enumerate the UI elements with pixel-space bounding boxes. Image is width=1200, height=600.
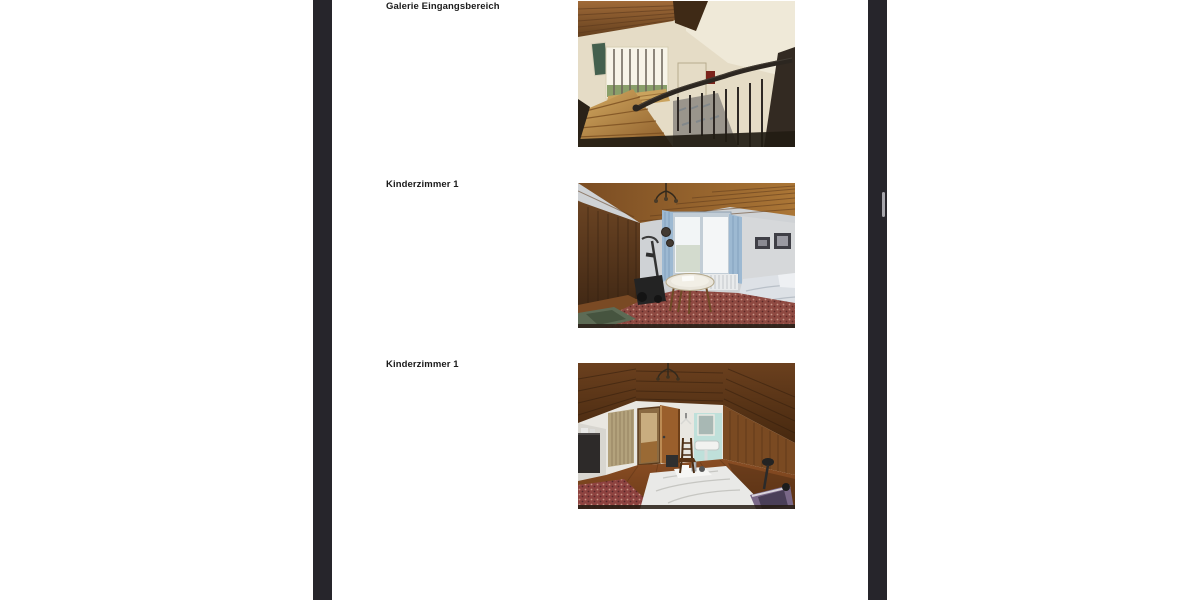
childrens-room-second-photo-art [578,363,795,509]
figure-caption: Kinderzimmer 1 [386,360,459,370]
figure-caption: Galerie Eingangsbereich [386,2,500,12]
pdf-viewer-canvas: Galerie Eingangsbereich [313,0,887,600]
photo-kinderzimmer-1-view-2 [578,363,795,509]
scrollbar-thumb[interactable] [882,192,885,217]
childrens-room-photo-art [578,183,795,328]
figure-caption: Kinderzimmer 1 [386,180,459,190]
photo-galerie-eingangsbereich [578,1,795,147]
staircase-photo-art [578,1,795,147]
document-page: Galerie Eingangsbereich [332,0,868,600]
photo-kinderzimmer-1-view-1 [578,183,795,328]
